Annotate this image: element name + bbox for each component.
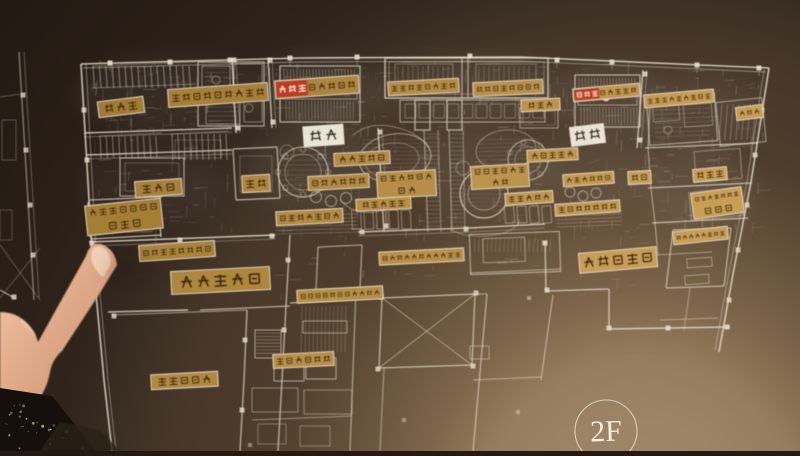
svg-text:2F: 2F xyxy=(590,414,623,448)
